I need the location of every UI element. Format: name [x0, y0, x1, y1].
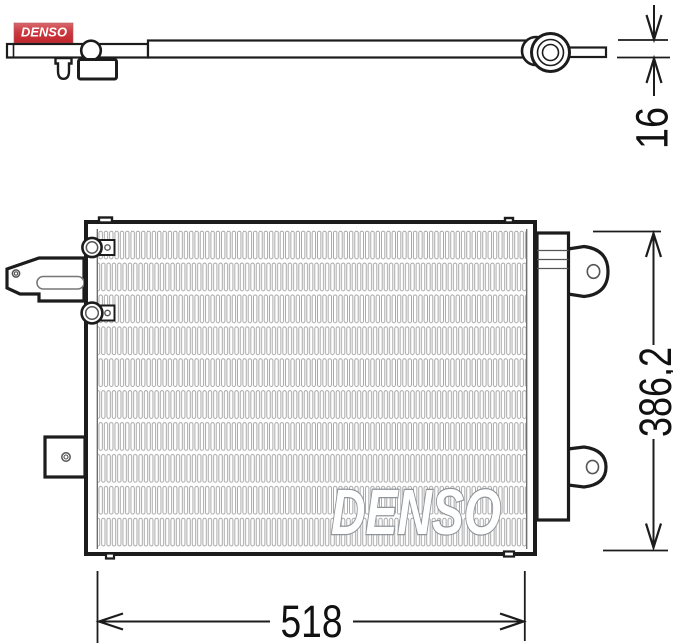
- port-upper-tab-hole: [105, 245, 110, 250]
- pipe-main-section: [148, 41, 532, 58]
- height-dimension-label: 386,2: [630, 347, 673, 437]
- depth-dimension-label: 16: [627, 107, 673, 149]
- port-upper-inner: [86, 242, 97, 253]
- fitting-flange-inner: [543, 45, 559, 61]
- edge-tab-top-right: [505, 218, 513, 223]
- receiver-drier: [537, 233, 569, 520]
- port-fitting-upper: [82, 238, 114, 257]
- edge-tab-top-left: [99, 218, 112, 223]
- top-view: [7, 34, 606, 80]
- port-lower-inner: [86, 307, 99, 320]
- outlet-stub: [566, 48, 606, 58]
- bracket-bottom-right: [568, 447, 606, 487]
- denso-logo-text: DENSO: [21, 26, 67, 40]
- denso-logo: DENSO: [14, 23, 73, 43]
- bracket-bottom-left-hole-inner: [64, 455, 68, 459]
- front-view: DENSO: [7, 218, 608, 559]
- bracket-top-right: [568, 247, 608, 297]
- dimension-depth: [617, 5, 670, 96]
- receiver-drier-body: [537, 233, 569, 520]
- bracket-bottom-left: [45, 437, 85, 477]
- mounting-pin: [56, 58, 72, 79]
- port-fitting-lower: [82, 303, 115, 324]
- port-lower-tab-hole: [105, 310, 110, 315]
- port-fitting-topview: [81, 41, 101, 61]
- denso-watermark-text: DENSO: [331, 476, 501, 548]
- edge-tab-bottom-left: [106, 554, 114, 559]
- inlet-arm: [7, 258, 84, 301]
- bracket-top-right-hole: [587, 265, 599, 279]
- width-dimension-label: 518: [281, 596, 343, 644]
- edge-tab-bottom-right: [504, 552, 514, 557]
- condenser-technical-drawing: DENSO 16: [0, 0, 673, 644]
- inlet-arm-slot: [37, 277, 84, 290]
- bracket-bottom-right-hole: [587, 460, 599, 473]
- pipe-left-section: [7, 44, 148, 58]
- mounting-block: [79, 60, 117, 80]
- inlet-arm-screw-inner: [14, 272, 17, 275]
- drawing-svg: DENSO 16: [0, 0, 673, 644]
